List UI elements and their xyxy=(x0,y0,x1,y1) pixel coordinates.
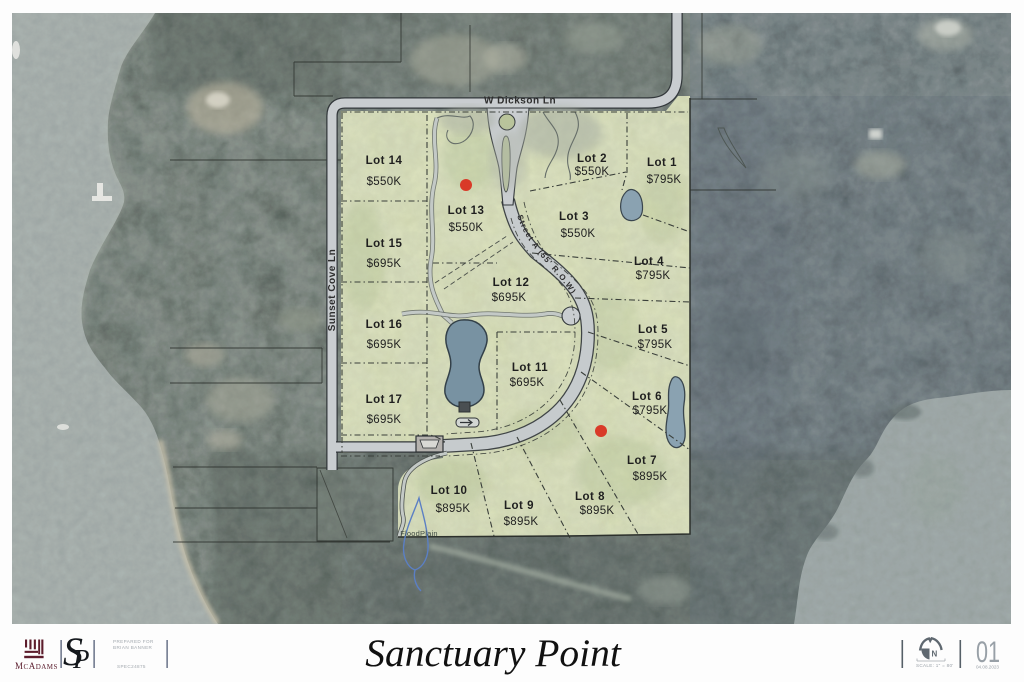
svg-text:04.08.2023: 04.08.2023 xyxy=(976,665,999,670)
svg-text:Lot 5: Lot 5 xyxy=(638,324,668,336)
svg-text:$895K: $895K xyxy=(504,516,539,528)
svg-text:Lot 16: Lot 16 xyxy=(366,319,403,331)
svg-text:$795K: $795K xyxy=(636,270,671,282)
svg-text:Lot 7: Lot 7 xyxy=(627,455,657,467)
svg-text:$895K: $895K xyxy=(580,505,615,517)
svg-text:$695K: $695K xyxy=(492,292,527,304)
svg-text:$695K: $695K xyxy=(510,377,545,389)
svg-text:$795K: $795K xyxy=(638,339,673,351)
svg-text:Lot 14: Lot 14 xyxy=(366,155,403,167)
svg-text:BRIAN BANNER: BRIAN BANNER xyxy=(113,645,153,650)
svg-text:Lot 3: Lot 3 xyxy=(559,211,589,223)
svg-text:Lot 2: Lot 2 xyxy=(577,153,607,165)
svg-text:PREPARED FOR: PREPARED FOR xyxy=(113,639,154,644)
svg-text:Lot 1: Lot 1 xyxy=(647,157,677,169)
svg-text:W Dickson Ln: W Dickson Ln xyxy=(484,96,556,107)
svg-text:Lot 4: Lot 4 xyxy=(634,256,664,268)
svg-text:$895K: $895K xyxy=(436,503,471,515)
svg-text:Lot 12: Lot 12 xyxy=(493,277,530,289)
svg-text:Lot 15: Lot 15 xyxy=(366,238,403,250)
svg-text:Lot 17: Lot 17 xyxy=(366,394,403,406)
svg-text:$550K: $550K xyxy=(575,166,610,178)
svg-text:$550K: $550K xyxy=(449,222,484,234)
svg-text:SPEC24875: SPEC24875 xyxy=(117,664,146,669)
svg-text:Lot 8: Lot 8 xyxy=(575,491,605,503)
svg-text:Sanctuary Point: Sanctuary Point xyxy=(365,631,622,675)
svg-text:SCALE: 1" = 80': SCALE: 1" = 80' xyxy=(916,663,954,668)
svg-text:Lot 13: Lot 13 xyxy=(448,205,485,217)
svg-text:Lot 9: Lot 9 xyxy=(504,500,534,512)
svg-text:$795K: $795K xyxy=(633,405,668,417)
svg-text:Lot 10: Lot 10 xyxy=(431,485,468,497)
svg-text:Lot 11: Lot 11 xyxy=(512,362,548,374)
svg-text:N: N xyxy=(932,650,938,659)
svg-text:$550K: $550K xyxy=(561,228,596,240)
svg-text:$695K: $695K xyxy=(367,414,402,426)
svg-text:$895K: $895K xyxy=(633,471,668,483)
svg-text:$695K: $695K xyxy=(367,258,402,270)
svg-text:Lot 6: Lot 6 xyxy=(632,391,662,403)
svg-text:$550K: $550K xyxy=(367,176,402,188)
svg-text:$695K: $695K xyxy=(367,339,402,351)
svg-text:Sunset Cove Ln: Sunset Cove Ln xyxy=(327,249,338,332)
svg-text:P: P xyxy=(72,644,90,674)
svg-text:$795K: $795K xyxy=(647,174,682,186)
svg-text:MCADAMS: MCADAMS xyxy=(15,661,58,671)
svg-text:FloodPlain: FloodPlain xyxy=(400,529,437,538)
